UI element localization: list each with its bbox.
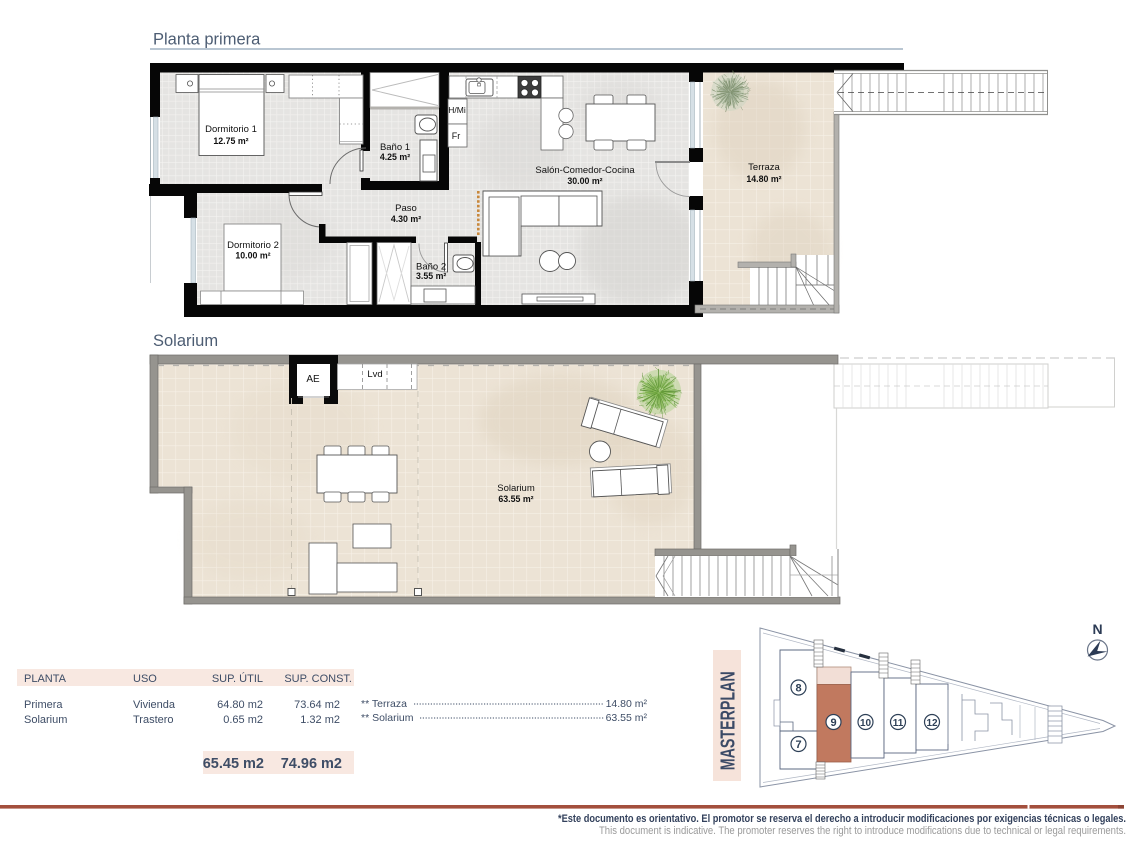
svg-text:12.75 m²: 12.75 m² [213, 136, 248, 146]
svg-text:PLANTA: PLANTA [24, 673, 67, 685]
svg-text:USO: USO [133, 673, 157, 685]
svg-text:AE: AE [306, 374, 320, 385]
svg-text:4.25 m²: 4.25 m² [380, 152, 410, 162]
svg-text:0.65 m2: 0.65 m2 [223, 714, 263, 726]
svg-text:14.80 m²: 14.80 m² [606, 698, 648, 710]
svg-text:Paso: Paso [395, 203, 417, 214]
svg-text:MASTERPLAN: MASTERPLAN [717, 671, 740, 770]
svg-text:Dormitorio 2: Dormitorio 2 [227, 240, 279, 251]
svg-text:** Solarium: ** Solarium [361, 712, 414, 724]
svg-text:1.32 m2: 1.32 m2 [300, 714, 340, 726]
svg-text:12: 12 [926, 718, 938, 729]
svg-text:Fr: Fr [452, 131, 461, 141]
svg-text:Solarium: Solarium [24, 714, 67, 726]
svg-text:63.55 m²: 63.55 m² [606, 712, 648, 724]
svg-text:*Este documento es orientativo: *Este documento es orientativo. El promo… [558, 813, 1126, 825]
svg-text:SUP. CONST.: SUP. CONST. [284, 673, 352, 685]
svg-text:H/Mi: H/Mi [448, 105, 466, 115]
svg-text:Trastero: Trastero [133, 714, 174, 726]
svg-text:14.80 m²: 14.80 m² [746, 174, 781, 184]
svg-text:10: 10 [860, 718, 872, 729]
svg-text:Solarium: Solarium [497, 483, 535, 494]
svg-text:63.55 m²: 63.55 m² [498, 494, 533, 504]
svg-text:4.30 m²: 4.30 m² [391, 214, 421, 224]
svg-text:9: 9 [830, 717, 836, 729]
svg-text:Solarium: Solarium [153, 332, 218, 350]
svg-text:3.55 m²: 3.55 m² [416, 271, 446, 281]
svg-text:Vivienda: Vivienda [133, 699, 176, 711]
svg-text:Dormitorio 1: Dormitorio 1 [205, 124, 257, 135]
svg-text:Primera: Primera [24, 699, 63, 711]
svg-text:73.64 m2: 73.64 m2 [294, 699, 340, 711]
svg-text:74.96 m2: 74.96 m2 [281, 756, 342, 772]
svg-text:8: 8 [795, 683, 801, 695]
svg-text:Lvd: Lvd [367, 369, 382, 380]
svg-text:This document is indicative. T: This document is indicative. The promote… [599, 825, 1126, 837]
svg-text:64.80 m2: 64.80 m2 [217, 699, 263, 711]
svg-text:10.00 m²: 10.00 m² [235, 251, 270, 261]
svg-text:** Terraza: ** Terraza [361, 698, 407, 710]
svg-text:11: 11 [893, 718, 904, 729]
svg-text:Planta primera: Planta primera [153, 31, 261, 49]
svg-text:65.45 m2: 65.45 m2 [203, 756, 264, 772]
svg-text:N: N [1092, 621, 1102, 637]
svg-text:30.00 m²: 30.00 m² [567, 176, 602, 186]
svg-text:Salón-Comedor-Cocina: Salón-Comedor-Cocina [535, 165, 635, 176]
svg-text:7: 7 [795, 739, 801, 751]
svg-text:Terraza: Terraza [748, 162, 780, 173]
svg-text:SUP. ÚTIL: SUP. ÚTIL [212, 672, 263, 685]
